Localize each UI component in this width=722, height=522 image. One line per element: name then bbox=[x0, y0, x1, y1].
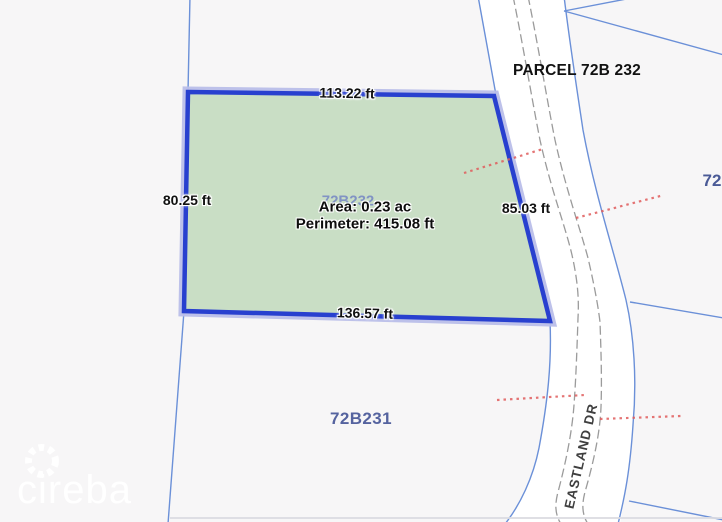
selected-parcel-polygon[interactable] bbox=[184, 92, 550, 321]
map-layers bbox=[0, 0, 722, 522]
map-canvas[interactable]: 113.22 ft 80.25 ft 85.03 ft 136.57 ft 72… bbox=[0, 0, 722, 522]
